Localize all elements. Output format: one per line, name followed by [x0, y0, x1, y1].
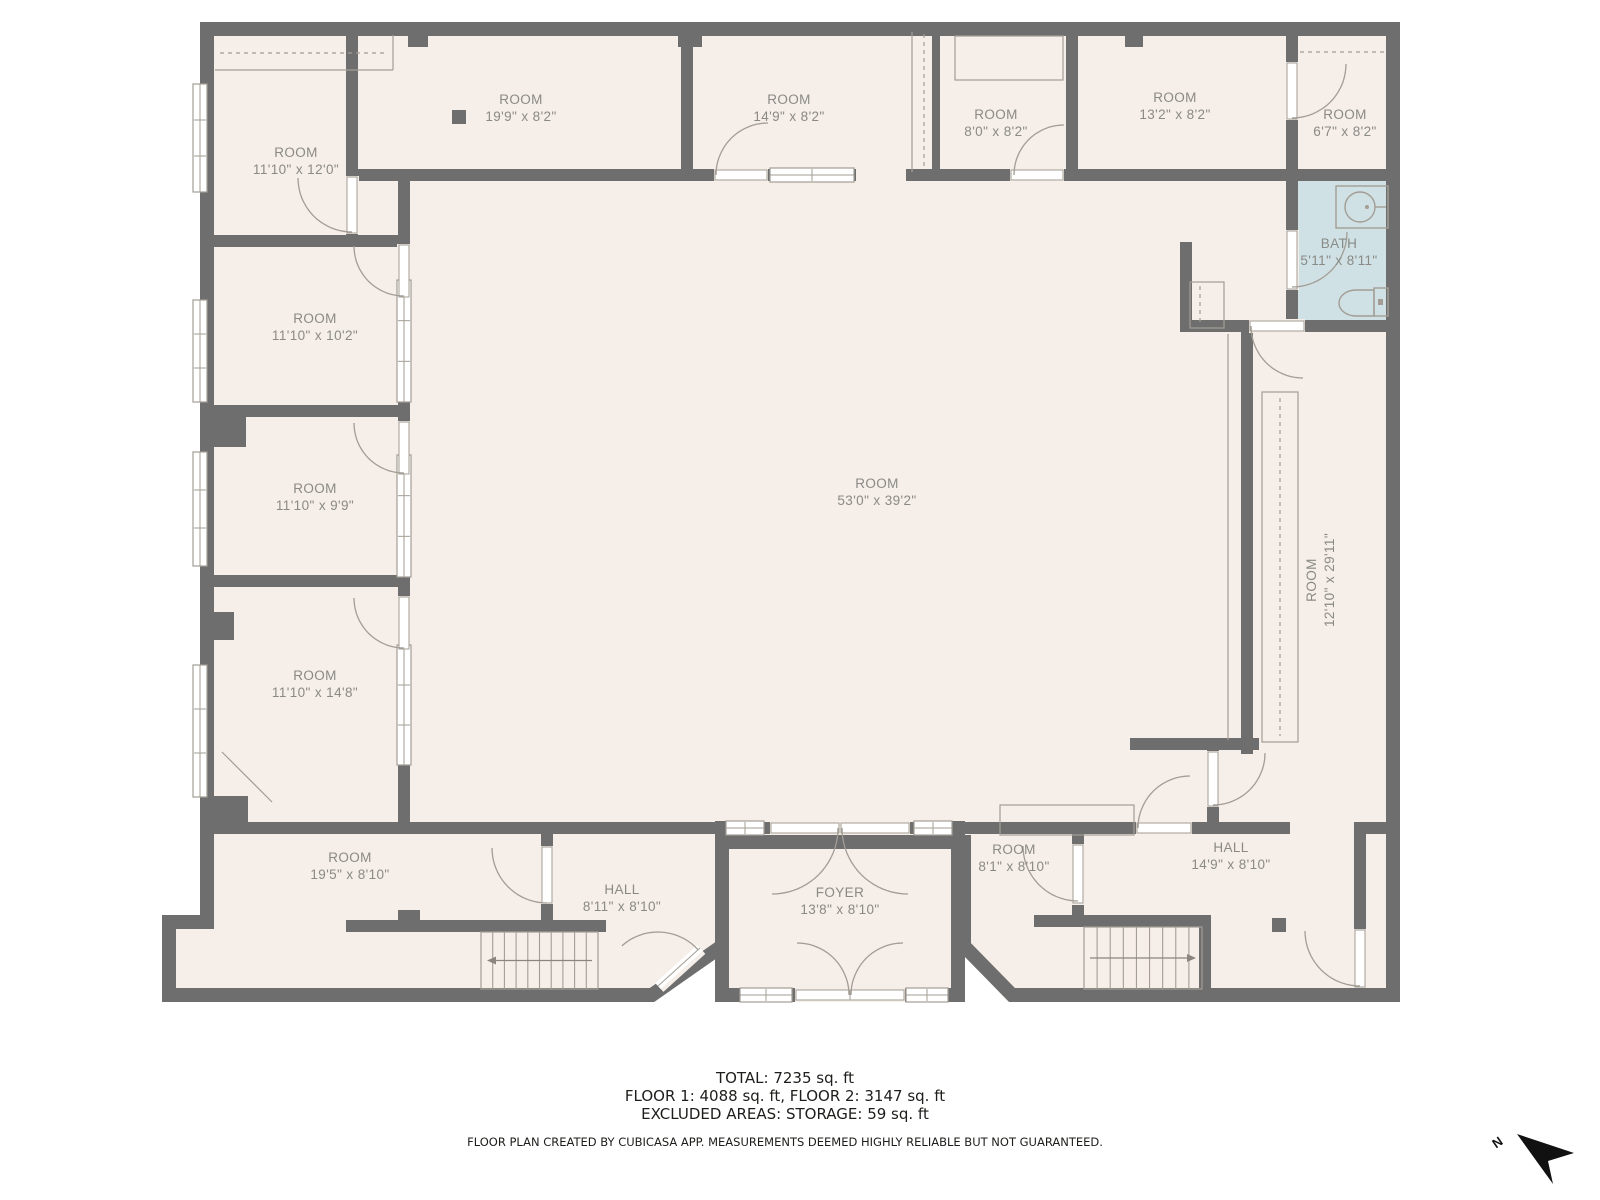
room-dims: 8'11" x 8'10": [583, 899, 661, 914]
room-dims: 8'1" x 8'10": [978, 859, 1049, 874]
sink-drain-icon: [1365, 205, 1369, 209]
room-label: ROOM: [499, 92, 543, 107]
room-dims: 11'10" x 14'8": [272, 685, 358, 700]
room-label: ROOM: [974, 107, 1018, 122]
room-label: BATH: [1321, 236, 1358, 251]
room-label: ROOM: [1304, 558, 1319, 602]
room-dims: 8'0" x 8'2": [964, 124, 1027, 139]
room-dims: 14'9" x 8'2": [753, 109, 824, 124]
summary-floors: FLOOR 1: 4088 sq. ft, FLOOR 2: 3147 sq. …: [625, 1087, 945, 1105]
room-label: ROOM: [293, 668, 337, 683]
room-label: ROOM: [274, 145, 318, 160]
room-dims: 12'10" x 29'11": [1322, 533, 1337, 627]
room-dims: 13'2" x 8'2": [1139, 107, 1210, 122]
room-label: ROOM: [855, 476, 899, 491]
room-label: ROOM: [767, 92, 811, 107]
room-label: ROOM: [293, 311, 337, 326]
room-dims: 11'10" x 9'9": [276, 498, 354, 513]
room-dims: 14'9" x 8'10": [1191, 857, 1270, 872]
room-dims: 19'9" x 8'2": [485, 109, 556, 124]
room-label: ROOM: [293, 481, 337, 496]
room-dims: 13'8" x 8'10": [800, 902, 879, 917]
room-label: ROOM: [1323, 107, 1367, 122]
disclaimer-text: FLOOR PLAN CREATED BY CUBICASA APP. MEAS…: [467, 1135, 1103, 1149]
room-label: HALL: [604, 882, 639, 897]
summary-total: TOTAL: 7235 sq. ft: [715, 1069, 854, 1087]
room-dims: 11'10" x 10'2": [272, 328, 358, 343]
room-dims: 19'5" x 8'10": [310, 867, 389, 882]
room-label: ROOM: [992, 842, 1036, 857]
room-dims: 5'11" x 8'11": [1300, 253, 1377, 268]
room-label: ROOM: [328, 850, 372, 865]
room-label: FOYER: [816, 885, 865, 900]
floor-plan-canvas: ROOM 11'10" x 12'0" ROOM 19'9" x 8'2" RO…: [0, 0, 1600, 1200]
room-label: HALL: [1213, 840, 1248, 855]
summary-excluded: EXCLUDED AREAS: STORAGE: 59 sq. ft: [641, 1105, 929, 1123]
room-dims: 6'7" x 8'2": [1313, 124, 1376, 139]
floor-plan-page: ROOM 11'10" x 12'0" ROOM 19'9" x 8'2" RO…: [0, 0, 1600, 1200]
room-label: ROOM: [1153, 90, 1197, 105]
room-dims: 53'0" x 39'2": [837, 493, 916, 508]
room-dims: 11'10" x 12'0": [253, 162, 339, 177]
